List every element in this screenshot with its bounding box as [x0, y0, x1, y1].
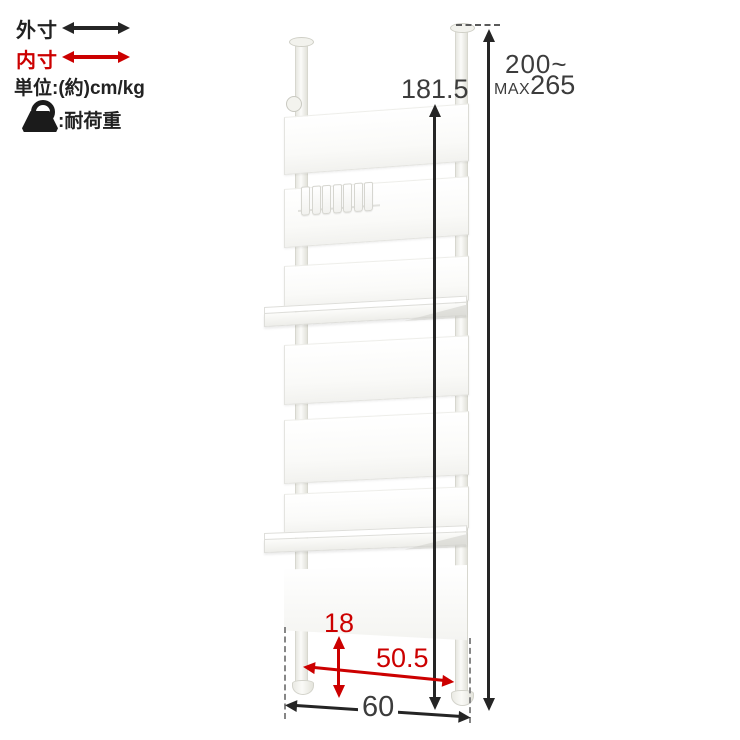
hook [312, 185, 321, 215]
unit-height-label: 181.5 [401, 74, 467, 105]
legend-load-label: :耐荷重 [58, 106, 121, 133]
hook-rack [285, 177, 468, 247]
wall-panel-7 [284, 565, 467, 641]
hook [354, 183, 363, 213]
left-pole-foot [292, 680, 314, 695]
legend-outer-label: 外寸 [16, 14, 58, 43]
pole-height-max-label: MAX265 [494, 70, 575, 101]
wall-panel-5 [284, 411, 469, 484]
left-pole-adjust-knob [286, 96, 302, 112]
left-pole-ceiling-cap [289, 37, 314, 47]
hook [343, 183, 352, 213]
ceiling-reference-dashed-line [456, 24, 500, 26]
base-clearance-dimension-line [337, 648, 340, 686]
pole-height-max-prefix: MAX [494, 81, 530, 98]
hook [333, 184, 342, 214]
hook [364, 182, 373, 212]
outer-dim-arrow-icon [73, 26, 119, 30]
wall-panel-2 [284, 176, 469, 248]
outer-width-label: 60 [358, 691, 398, 724]
diagram-canvas: 外寸 内寸 単位:(約)cm/kg :耐荷重 [0, 0, 740, 740]
legend-unit-label: 単位:(約)cm/kg [14, 73, 145, 100]
pole-height-dimension-line [487, 41, 490, 699]
inner-dim-arrow-icon [73, 55, 119, 59]
hook [301, 186, 310, 216]
wall-panel-4 [284, 335, 469, 405]
pole-height-max-value: 265 [530, 70, 575, 100]
legend-inner-label: 内寸 [16, 44, 58, 73]
inner-width-label: 50.5 [376, 643, 429, 674]
wall-panel-1 [284, 103, 469, 175]
base-clearance-label: 18 [322, 608, 356, 639]
unit-height-dimension-line [433, 116, 436, 698]
hook [322, 185, 331, 215]
weight-icon [22, 100, 58, 132]
